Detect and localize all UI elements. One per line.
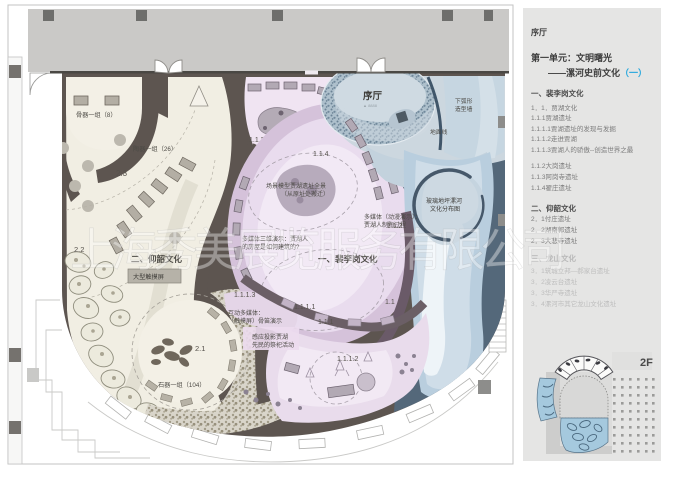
svg-text:下弧形: 下弧形 xyxy=(455,97,473,105)
svg-text:序厅: 序厅 xyxy=(363,90,383,102)
svg-text:1.1.1.1: 1.1.1.1 xyxy=(294,304,316,311)
svg-text:二、仰韶文化: 二、仰韶文化 xyxy=(531,203,576,213)
svg-text:3．4漯河市其它龙山文化遗址: 3．4漯河市其它龙山文化遗址 xyxy=(531,299,617,308)
svg-text:上海秀美展览服务有限公司: 上海秀美展览服务有限公司 xyxy=(70,224,562,276)
svg-text:1.1.1: 1.1.1 xyxy=(318,319,334,326)
svg-text:2．1付庄遗址: 2．1付庄遗址 xyxy=(531,214,571,223)
svg-text:3．2凌云台遗址: 3．2凌云台遗址 xyxy=(531,277,578,286)
svg-text:（从原址处搬迁）: （从原址处搬迁） xyxy=(281,190,329,198)
svg-text:造型墙: 造型墙 xyxy=(455,105,473,113)
svg-text:1.1.1贾湖遗址: 1.1.1贾湖遗址 xyxy=(531,113,572,122)
svg-text:1.1.1.3: 1.1.1.3 xyxy=(234,292,256,299)
svg-text:先民的祭祀活动: 先民的祭祀活动 xyxy=(252,341,294,349)
svg-text:感应投影贾湖: 感应投影贾湖 xyxy=(252,333,288,341)
svg-text:1.1.1.1贾湖遗址的发现与发掘: 1.1.1.1贾湖遗址的发现与发掘 xyxy=(531,124,616,133)
svg-text:玻璃地坪漯河: 玻璃地坪漯河 xyxy=(426,197,462,205)
svg-text:2.3: 2.3 xyxy=(116,169,128,178)
svg-text:1．1．贾湖文化: 1．1．贾湖文化 xyxy=(531,103,578,112)
svg-text:骨器一组（8）: 骨器一组（8） xyxy=(76,111,117,119)
svg-text:1.1.1.2: 1.1.1.2 xyxy=(337,356,359,363)
svg-text:陶器一组（26）: 陶器一组（26） xyxy=(133,145,177,153)
svg-text:1.1.1.3贾湖人的骄傲--创造世界之最: 1.1.1.3贾湖人的骄傲--创造世界之最 xyxy=(531,145,634,154)
svg-text:文化分布图: 文化分布图 xyxy=(430,205,460,213)
svg-text:1.1.4: 1.1.4 xyxy=(313,151,329,158)
svg-text:多媒体（动漫演示）：: 多媒体（动漫演示）： xyxy=(364,213,421,221)
svg-text:互动多媒体：: 互动多媒体： xyxy=(228,309,264,317)
svg-text:1.1.4翟庄遗址: 1.1.4翟庄遗址 xyxy=(531,183,572,192)
svg-text:1.1.1.2走进贾湖: 1.1.1.2走进贾湖 xyxy=(531,134,577,143)
svg-text:地面线: 地面线 xyxy=(430,128,448,136)
svg-text:3．3华严寺遗址: 3．3华严寺遗址 xyxy=(531,288,578,297)
svg-text:（触摸屏）骨笛演示: （触摸屏）骨笛演示 xyxy=(228,317,282,325)
svg-text:2F: 2F xyxy=(640,357,653,369)
svg-text:▲ 8888: ▲ 8888 xyxy=(363,103,378,108)
svg-text:1.1: 1.1 xyxy=(385,299,395,306)
svg-text:1.1.2大岗遗址: 1.1.2大岗遗址 xyxy=(531,161,572,170)
svg-text:2.1: 2.1 xyxy=(195,344,205,353)
svg-text:石器一组（104）: 石器一组（104） xyxy=(158,381,205,389)
svg-text:场景模型贾湖遗址全景: 场景模型贾湖遗址全景 xyxy=(266,182,326,190)
svg-text:一、裴李岗文化: 一、裴李岗文化 xyxy=(531,88,584,98)
svg-text:——漯河史前文化（一）: ——漯河史前文化（一） xyxy=(548,67,647,78)
svg-text:1.1.3阿岗寺遗址: 1.1.3阿岗寺遗址 xyxy=(531,172,578,181)
svg-text:第一单元：文明曙光: 第一单元：文明曙光 xyxy=(531,52,612,63)
svg-text:序厅: 序厅 xyxy=(531,27,547,37)
